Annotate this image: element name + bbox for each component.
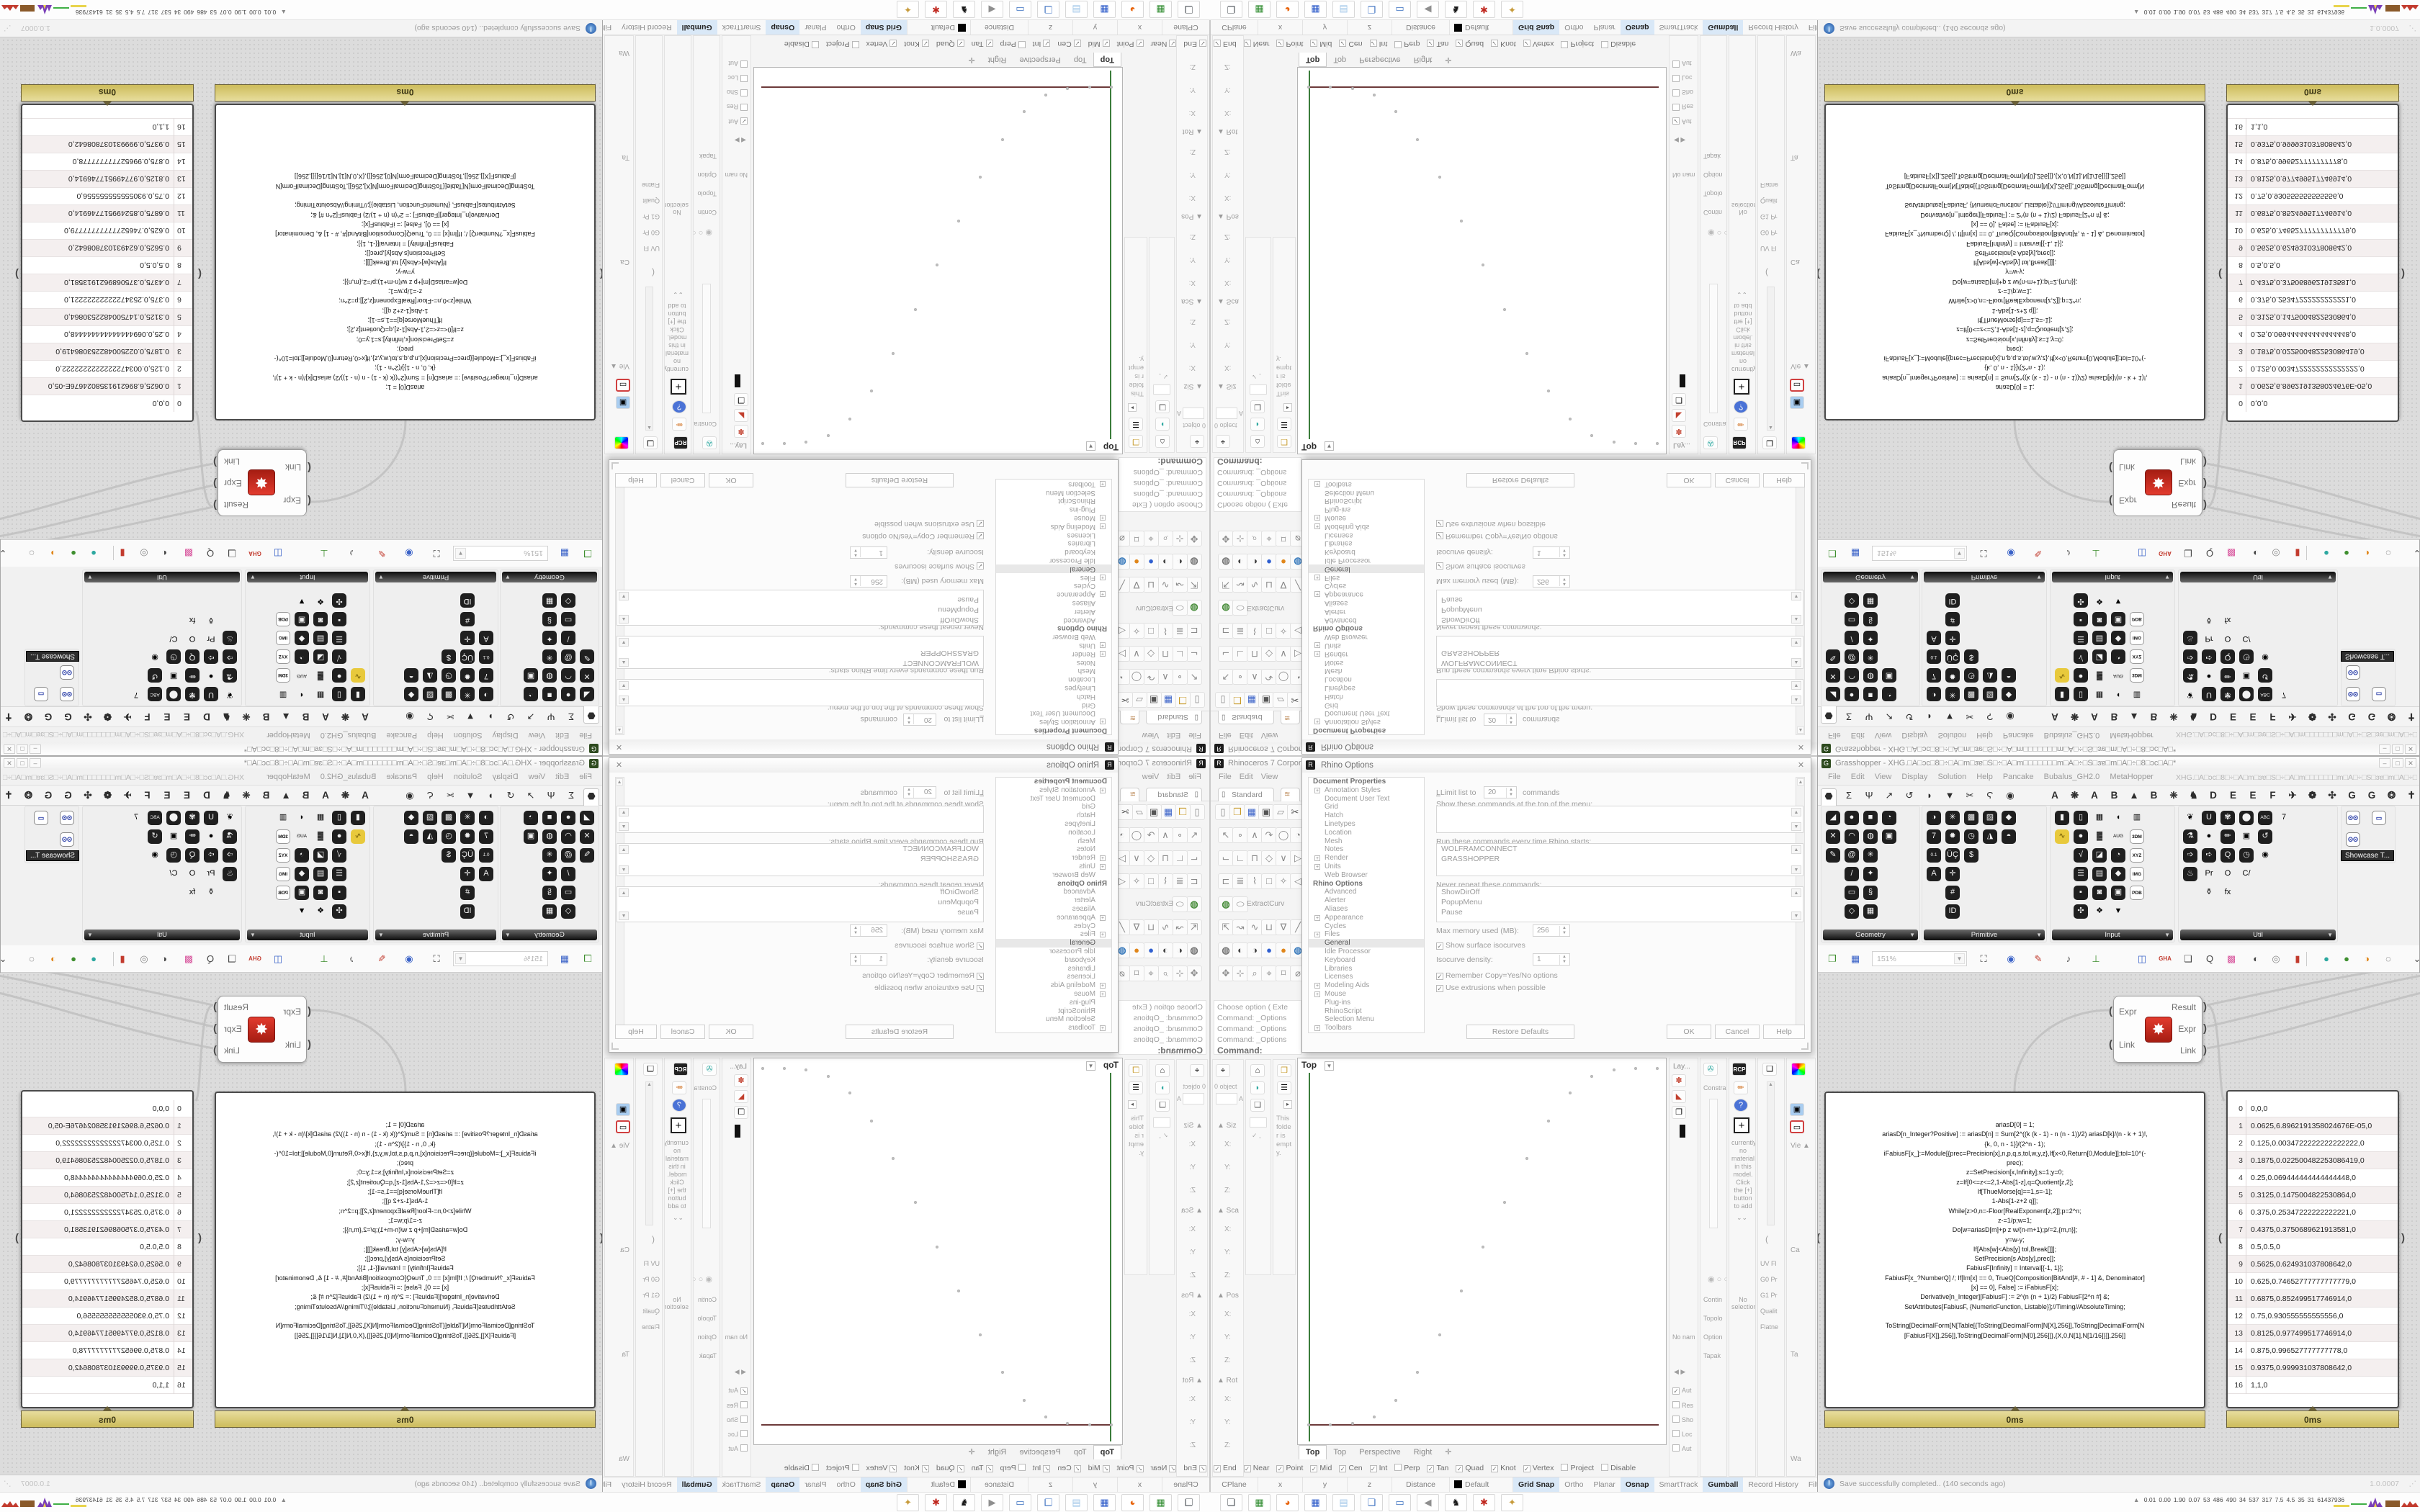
tree-item-keyboard[interactable]: Keyboard <box>1309 547 1424 556</box>
osnap-quad[interactable]: ✓Quad <box>1456 1461 1484 1475</box>
table-row[interactable]: 50.3125,0.1475004822530864,0 <box>22 308 192 325</box>
tree-item-selection-menu[interactable]: Selection Menu <box>1309 1015 1424 1024</box>
tree-item-idle-processor[interactable]: Idle Processor <box>996 556 1111 564</box>
toolbar-icon-3[interactable]: ▣ <box>1258 692 1274 708</box>
gh-toolbar-icon-10[interactable]: ❏ <box>223 950 241 968</box>
viewport-tab-perspective-2[interactable]: Perspective <box>1353 52 1407 66</box>
maximize-icon[interactable]: □ <box>17 744 28 754</box>
input-grip[interactable]: ( <box>308 1038 311 1050</box>
tree-item-alerter[interactable]: Alerter <box>1309 896 1424 905</box>
gh-toolbar-icon-8[interactable]: ◫ <box>269 950 287 968</box>
status-cell-distance[interactable]: Distance <box>970 1477 1028 1492</box>
gh-tab-❁[interactable]: ❁ <box>100 709 116 724</box>
tree-item-document-properties[interactable]: Document Properties <box>1309 778 1424 786</box>
component-icon[interactable]: ▥ <box>276 687 290 701</box>
tool-icon[interactable]: ↝ <box>1172 577 1188 593</box>
tree-item-plug-ins[interactable]: Plug-ins <box>996 505 1111 513</box>
component-icon[interactable]: ◠ <box>561 829 575 844</box>
component-icon[interactable]: ❖ <box>2092 593 2107 608</box>
component-icon[interactable]: ◓ <box>404 668 418 683</box>
scroll-down-icon[interactable]: ▼ <box>1791 681 1801 690</box>
close-icon[interactable]: ✕ <box>4 758 15 768</box>
component-icon[interactable]: ◆ <box>295 867 309 881</box>
component-icon[interactable]: ◇ <box>1845 593 1859 608</box>
showcase-icon[interactable]: ▭ <box>34 811 48 825</box>
osnap-quad[interactable]: ✓Quad <box>936 1461 964 1475</box>
constraints-row[interactable]: Option <box>1703 1333 1723 1341</box>
taskbar-icon-6[interactable]: ▭ <box>1389 1494 1411 1511</box>
tool-icon[interactable]: ⊹ <box>1232 531 1248 546</box>
small-field[interactable] <box>1153 384 1170 395</box>
gh-toolbar-icon-1[interactable]: ▦ <box>1847 544 1864 562</box>
component-icon[interactable]: ● <box>2202 668 2216 683</box>
section-rot[interactable]: ▲ Rot <box>1183 1377 1203 1385</box>
help-icon[interactable]: ? <box>672 1099 686 1112</box>
startup-commands-listbox[interactable]: ▲ ▼ WOLFRAMCONNECTGRASSHOPPER <box>1436 843 1803 876</box>
tree-item-web-browser[interactable]: Web Browser <box>1309 632 1424 641</box>
component-icon[interactable]: ◉ <box>2258 649 2272 664</box>
showcase-icon[interactable]: ▭ <box>2372 687 2386 701</box>
gh-menu-metahopper[interactable]: MetaHopper <box>266 728 310 742</box>
expander-icons[interactable]: ⌄⌄ <box>673 290 684 298</box>
component-icon[interactable]: AUG 20 <box>2111 829 2125 844</box>
constraints-tab[interactable]: Constra <box>694 420 717 428</box>
extrusions-checkbox[interactable]: ✓Use extrusions when possible <box>874 520 984 528</box>
table-row[interactable]: 10.0625,6.8962191358024676E-05,0 <box>22 377 192 395</box>
dialog-titlebar[interactable]: R Rhino Options ✕ <box>1302 739 1811 754</box>
brush-icon[interactable]: ✏ <box>1734 1081 1748 1094</box>
tool-icon[interactable]: ∧ <box>1157 827 1173 843</box>
gh-toolbar-icon-18[interactable]: ● <box>65 544 82 562</box>
scroll-down-icon[interactable]: ▼ <box>619 912 629 920</box>
component-icon[interactable]: ◠ <box>561 668 575 683</box>
table-row[interactable]: 140.875,0.996527777777778,0 <box>2228 1342 2398 1359</box>
section-sca[interactable]: ▲ Sca <box>1181 297 1203 305</box>
taskbar-icon-10[interactable]: ✦ <box>897 1 919 18</box>
screen-icon[interactable]: ▭ <box>1790 1120 1804 1133</box>
section-sca[interactable]: ▲ Sca <box>1181 1207 1203 1215</box>
screen-icon[interactable]: ▭ <box>616 379 630 392</box>
table-row[interactable]: 40.25,0.069444444444444448,0 <box>2228 325 2398 343</box>
toggle-osnap[interactable]: Osnap <box>766 1477 800 1492</box>
extrusions-checkbox[interactable]: ✓Use extrusions when possible <box>1436 520 1546 528</box>
table-row[interactable]: 130.8125,0.977499517746914,0 <box>22 1325 192 1342</box>
component-icon[interactable]: ▨ <box>423 811 437 825</box>
gh-tab-A[interactable]: A <box>318 709 333 724</box>
constraints-row[interactable]: Topolo <box>697 1315 717 1322</box>
table-row[interactable]: 50.3125,0.1475004822530864,0 <box>2228 1187 2398 1204</box>
osnap-knot[interactable]: ✓Knot <box>904 1461 929 1475</box>
component-icon[interactable]: ∿ <box>2055 668 2069 683</box>
gh-tab-F[interactable]: F <box>140 788 156 803</box>
constraints-row[interactable]: Contin <box>698 209 717 216</box>
gh-menu-file[interactable]: File <box>1828 728 1841 742</box>
component-icon[interactable]: fx <box>185 612 200 626</box>
panel-icon[interactable]: ⌂ <box>1155 1064 1170 1077</box>
table-row[interactable]: 40.25,0.069444444444444448,0 <box>2228 1169 2398 1187</box>
toggle-ortho[interactable]: Ortho <box>1559 1477 1588 1492</box>
gh-document-selector[interactable]: XHG.□A□ɔc□8□÷□A□m□ɜɐ□S□÷□A□m□□□□□□□m□A□÷… <box>2176 726 2417 742</box>
toolbar-icon-4[interactable]: ▱ <box>1131 804 1147 820</box>
component-icon[interactable]: ▼ <box>2111 593 2125 608</box>
gh-toolbar-icon-11[interactable]: Q <box>2201 544 2218 562</box>
tool-icon[interactable]: ● <box>1143 554 1159 570</box>
obj-icon[interactable]: ◣ <box>734 409 748 422</box>
component-icon[interactable]: ✦ <box>542 867 557 881</box>
osnap-cen[interactable]: ✓Cen <box>1339 37 1362 51</box>
component-icon[interactable]: ▪ <box>332 612 346 626</box>
table-row[interactable]: 140.875,0.996527777777778,0 <box>2228 153 2398 170</box>
table-row[interactable]: 110.6875,0.852499517746914,0 <box>2228 204 2398 222</box>
input-link[interactable]: Link <box>2119 462 2135 472</box>
expand-icon[interactable]: ▸ <box>1283 1100 1292 1109</box>
gh-tab-❋[interactable]: ❋ <box>2067 788 2083 803</box>
gh-menu-display[interactable]: Display <box>493 728 519 742</box>
input-grip[interactable]: ( <box>308 462 311 474</box>
component-icon[interactable]: ⬤ <box>166 687 181 701</box>
component-icon[interactable]: ◪ <box>313 649 328 664</box>
palette-label-primitive[interactable]: Primitive▼ <box>375 572 496 582</box>
component-icon[interactable]: ✣ <box>332 593 346 608</box>
component-icon[interactable]: ▪ <box>2074 612 2088 626</box>
panel-icon[interactable]: ◗ <box>1250 1081 1265 1094</box>
tool-icon[interactable]: ⊹ <box>1172 531 1188 546</box>
component-icon[interactable]: ID <box>460 904 475 919</box>
component-icon[interactable]: # <box>1945 612 1960 626</box>
help-button[interactable]: Help <box>1763 473 1805 487</box>
component-icon[interactable]: ✳ <box>1863 848 1878 863</box>
resize-grip[interactable] <box>1801 462 1809 469</box>
viewport-top[interactable]: Top ▼ <box>1297 67 1667 454</box>
tab-hatch[interactable]: ≋ <box>1281 788 1300 801</box>
showcase-icon[interactable]: ʘʘ <box>2346 665 2360 680</box>
gh-tab-D[interactable]: D <box>199 709 215 724</box>
status-cell-z[interactable]: z <box>1028 20 1072 35</box>
gh-tab-❁[interactable]: ❁ <box>2305 709 2321 724</box>
add-material-icon[interactable]: + <box>1734 379 1749 395</box>
tool-icon[interactable]: ≣ <box>1172 623 1188 639</box>
tool-icon[interactable]: ⌇ <box>1247 873 1263 889</box>
gh-tab-icon[interactable]: ↗ <box>1881 709 1897 724</box>
component-icon[interactable]: ▦ <box>313 811 328 825</box>
gh-tab-icon[interactable]: ▼ <box>462 709 478 724</box>
gh-menu-display[interactable]: Display <box>493 770 519 784</box>
osnap-cen[interactable]: ✓Cen <box>1057 1461 1080 1475</box>
gh-tab-❂[interactable]: ❂ <box>21 709 37 724</box>
tool-icon[interactable]: ↖ <box>1218 669 1234 685</box>
list-item[interactable]: ShowDirOff <box>617 887 983 897</box>
gh-tab-❋[interactable]: ❋ <box>338 709 354 724</box>
gh-menu-bubalus_gh2.0[interactable]: Bubalus_GH2.0 <box>321 770 377 784</box>
tab-standard[interactable]: ▯Standard <box>1218 711 1274 724</box>
component-icon[interactable]: ➩ <box>223 848 237 863</box>
component-icon[interactable]: ◓ <box>2002 829 2016 844</box>
panel-input-grip[interactable]: ( <box>198 1232 202 1244</box>
tree-item-hatch[interactable]: Hatch <box>1309 811 1424 820</box>
tool-icon[interactable]: ↖ <box>1218 827 1234 843</box>
component-icon[interactable]: ◔ <box>295 649 309 664</box>
tree-item-mesh[interactable]: Mesh <box>1309 667 1424 675</box>
radio-icons[interactable]: ◉ ○ ○ <box>1708 228 1727 238</box>
memory-spinner[interactable]: 256▲▼ <box>1533 924 1570 937</box>
component-icon[interactable]: ÜÇ <box>460 848 475 863</box>
toolbar-icon-1[interactable]: ❒ <box>1229 692 1245 708</box>
gh-tab-G[interactable]: G <box>60 788 76 803</box>
tool-icon[interactable]: ⌖ <box>1143 531 1159 546</box>
component-icon[interactable]: ▥ <box>2130 687 2144 701</box>
gh-tab-A[interactable]: A <box>2047 788 2063 803</box>
help-button[interactable]: Help <box>1763 1025 1805 1039</box>
component-icon[interactable]: ◪ <box>2092 649 2107 664</box>
osnap-vertex[interactable]: ✓Vertex <box>866 37 897 51</box>
menu-edit[interactable]: Edit <box>1240 728 1253 742</box>
tool-icon[interactable]: ⌑ <box>1129 966 1144 981</box>
tool-icon[interactable]: ◯ <box>1276 669 1291 685</box>
gh-tab-F[interactable]: F <box>2265 709 2281 724</box>
scrollbar[interactable]: ▲ <box>1767 287 1775 431</box>
table-row[interactable]: 10.0625,6.8962191358024676E-05,0 <box>2228 377 2398 395</box>
info-icon[interactable]: ! <box>1824 23 1834 34</box>
output-grip[interactable]: ) <box>213 1022 217 1035</box>
resize-grip[interactable] <box>611 462 619 469</box>
osnap-perp[interactable]: Perp <box>1394 37 1420 51</box>
dock-check[interactable]: Aut <box>728 60 748 68</box>
tree-item-rhinoscript[interactable]: RhinoScript <box>996 1007 1111 1016</box>
minimize-icon[interactable]: – <box>2379 744 2390 754</box>
toolbar-icon-0[interactable]: ▯ <box>1189 692 1205 708</box>
component-icon[interactable]: √ <box>2074 848 2088 863</box>
tool-icon[interactable]: ⊓ <box>1157 646 1173 662</box>
tool-icon[interactable]: ∟ <box>1172 646 1188 662</box>
panel-input-grip[interactable]: ( <box>2218 1232 2222 1244</box>
tree-item-plug-ins[interactable]: Plug-ins <box>1309 505 1424 513</box>
tree-item-appearance[interactable]: +Appearance <box>1309 914 1424 922</box>
limit-spinner[interactable]: 20▲▼ <box>1484 786 1517 798</box>
gh-tab-❋[interactable]: ❋ <box>2067 709 2083 724</box>
tool-icon[interactable]: ∘ <box>1172 827 1188 843</box>
tool-icon[interactable]: ◇ <box>1143 646 1159 662</box>
table-row[interactable]: 80.5,0.5,0 <box>22 256 192 274</box>
tool-icon[interactable]: ◍ <box>1218 896 1234 912</box>
gh-toolbar-icon-10[interactable]: ❏ <box>223 544 241 562</box>
osnap-near[interactable]: ✓Near <box>1151 1461 1177 1475</box>
gh-menu-solution[interactable]: Solution <box>454 770 483 784</box>
gh-tab-E[interactable]: E <box>2226 788 2241 803</box>
component-icon[interactable]: ☰ <box>2074 631 2088 645</box>
toggle-gumball[interactable]: Gumball <box>677 1477 717 1492</box>
tab-hatch[interactable]: ≋ <box>1120 788 1139 801</box>
density-spinner[interactable]: 1▲▼ <box>850 546 887 559</box>
tree-item-keyboard[interactable]: Keyboard <box>996 956 1111 965</box>
scroll-down-icon[interactable]: ▼ <box>619 865 629 874</box>
camera-axes-icon[interactable]: ✇ <box>1703 1063 1718 1076</box>
name-field[interactable] <box>1183 408 1204 419</box>
tool-icon[interactable]: ◍ <box>1218 942 1234 958</box>
tool-icon[interactable]: ✥ <box>1218 531 1234 546</box>
output-grip[interactable]: ) <box>213 1044 217 1056</box>
component-icon[interactable]: Q <box>185 848 200 863</box>
osnap-tan[interactable]: ✓Tan <box>1427 1461 1448 1475</box>
constraints-row[interactable]: Tapak <box>699 1352 717 1359</box>
component-icon[interactable]: ♨ <box>223 631 237 645</box>
gh-toolbar-icon-13[interactable]: ◐ <box>156 544 173 562</box>
component-icon[interactable]: ◆ <box>404 811 418 825</box>
component-icon[interactable]: A <box>479 867 493 881</box>
tree-item-mouse[interactable]: +Mouse <box>996 990 1111 999</box>
palette-label-input[interactable]: Input▼ <box>247 930 368 940</box>
tool-icon[interactable]: ⬭ <box>1172 896 1188 912</box>
tool-icon[interactable]: ◍ <box>1186 942 1202 958</box>
list-item[interactable]: WOLFRAMCONNECT <box>1437 658 1803 668</box>
folder-icon[interactable]: ❒ <box>1277 435 1291 448</box>
gh-toolbar-icon-19[interactable]: ◑ <box>45 950 62 968</box>
taskbar-icon-2[interactable]: ◕ <box>1276 1 1299 18</box>
component-icon[interactable]: 3DM <box>2130 829 2144 844</box>
panel-icon[interactable]: ◗ <box>1155 418 1170 431</box>
osnap-disable[interactable]: Disable <box>784 37 819 51</box>
close-icon[interactable]: ✕ <box>2405 744 2416 754</box>
list-item[interactable]: GRASSHOPPER <box>617 854 983 864</box>
tree-item-idle-processor[interactable]: Idle Processor <box>1309 556 1424 564</box>
tool-icon[interactable]: ◇ <box>1261 646 1277 662</box>
component-icon[interactable]: ⚱ <box>204 886 218 900</box>
component-icon[interactable]: $ <box>1964 848 1978 863</box>
table-row[interactable]: 50.3125,0.1475004822530864,0 <box>2228 308 2398 325</box>
tree-item-mouse[interactable]: +Mouse <box>1309 513 1424 522</box>
panel-output-grip[interactable]: ) <box>2401 268 2405 280</box>
list-item[interactable]: Pause <box>617 907 983 917</box>
tree-item-appearance[interactable]: +Appearance <box>996 914 1111 922</box>
layer-cell[interactable]: Default <box>907 1477 970 1492</box>
list-item[interactable]: GRASSHOPPER <box>617 648 983 658</box>
component-icon[interactable]: ▣ <box>295 886 309 900</box>
gh-menu-help[interactable]: Help <box>427 770 444 784</box>
component-icon[interactable]: 7 <box>2277 687 2291 701</box>
screen-icon[interactable]: ▭ <box>616 1120 630 1133</box>
component-icon[interactable]: ▣ <box>524 668 538 683</box>
gh-toolbar-icon-12[interactable]: ▩ <box>180 544 197 562</box>
osnap-point[interactable]: ✓Point <box>1117 37 1144 51</box>
gh-tab-icon[interactable]: ◉ <box>2002 709 2018 724</box>
expander-icons[interactable]: ⌄⌄ <box>1736 290 1747 298</box>
table-row[interactable]: 70.4375,0.3750689621913581,0 <box>22 274 192 291</box>
gh-toolbar-icon-0[interactable]: ❐ <box>579 544 596 562</box>
table-row[interactable]: 30.1875,0.022500482253086419,0 <box>22 1152 192 1169</box>
toolbar-icon-4[interactable]: ▱ <box>1273 804 1289 820</box>
tool-icon[interactable]: ⊏ <box>1186 873 1202 889</box>
gh-tab-icon[interactable]: ◗ <box>483 788 498 803</box>
small-field[interactable] <box>1250 384 1267 395</box>
pager-icons[interactable]: ◀ ▶ <box>1674 1368 1685 1376</box>
scroll-up-icon[interactable]: ▲ <box>619 845 629 854</box>
gh-toolbar-icon-0[interactable]: ❐ <box>1824 544 1841 562</box>
component-icon[interactable]: O <box>185 631 200 645</box>
component-icon[interactable]: ◠ <box>1845 668 1859 683</box>
component-icon[interactable]: ▦ <box>2092 811 2107 825</box>
tool-icon[interactable]: □ <box>1261 623 1277 639</box>
component-icon[interactable]: 7 <box>479 829 493 844</box>
gh-toolbar-icon-4[interactable]: ◉ <box>400 950 418 968</box>
component-icon[interactable]: ☰ <box>332 631 346 645</box>
startup-commands-listbox[interactable]: ▲ ▼ WOLFRAMCONNECTGRASSHOPPER <box>617 636 984 669</box>
list-item[interactable]: ShowDirOff <box>1437 887 1803 897</box>
tool-icon[interactable]: ⊔ <box>1261 919 1277 935</box>
component-icon[interactable]: ✣ <box>332 904 346 919</box>
gh-toolbar-icon-5[interactable]: ✎ <box>2030 950 2047 968</box>
viewport-prop-ca[interactable]: Ca <box>620 258 629 266</box>
section-siz[interactable]: ▲ Siz <box>1217 1122 1237 1130</box>
table-row[interactable]: 40.25,0.069444444444444448,0 <box>22 1169 192 1187</box>
component-icon[interactable]: ❦ <box>2183 811 2197 825</box>
tree-item-location[interactable]: Location <box>996 829 1111 837</box>
toggle-grid-snap[interactable]: Grid Snap <box>861 20 907 35</box>
component-icon[interactable]: ⬤ <box>166 811 181 825</box>
table-row[interactable]: 90.5625,0.624931037808642,0 <box>22 1256 192 1273</box>
component-icon[interactable]: ● <box>332 668 346 683</box>
component-icon[interactable]: ➪ <box>2202 649 2216 664</box>
gh-tab-icon[interactable]: ↺ <box>1901 788 1917 803</box>
gh-toolbar-icon-21[interactable]: ⌄ <box>0 544 12 562</box>
gh-tab-♞[interactable]: ♞ <box>219 788 235 803</box>
tree-item-render[interactable]: +Render <box>996 649 1111 658</box>
component-icon[interactable]: ↺ <box>2258 829 2272 844</box>
gh-tab-D[interactable]: D <box>199 788 215 803</box>
gh-toolbar-icon-17[interactable]: ● <box>2318 544 2335 562</box>
status-cell-cplane[interactable]: CPlane <box>1211 20 1258 35</box>
taskbar-icon-0[interactable]: ❏ <box>1220 1494 1242 1511</box>
tree-item-hatch[interactable]: Hatch <box>1309 692 1424 701</box>
monitor-icon[interactable]: ❏ <box>643 436 658 449</box>
osnap-point[interactable]: ✓Point <box>1276 37 1303 51</box>
density-spinner[interactable]: 1▲▼ <box>1533 953 1570 966</box>
tool-icon[interactable]: ⌖ <box>1261 966 1277 981</box>
toolbar-icon-2[interactable]: ▦ <box>1244 804 1260 820</box>
gh-menu-metahopper[interactable]: MetaHopper <box>2110 770 2154 784</box>
palette-label-geometry[interactable]: Geometry▼ <box>1823 572 1918 582</box>
density-spinner[interactable]: 1▲▼ <box>850 953 887 966</box>
gh-menu-display[interactable]: Display <box>1901 770 1927 784</box>
osnap-cen[interactable]: ✓Cen <box>1057 37 1080 51</box>
gh-tab-✝[interactable]: ✝ <box>2403 788 2419 803</box>
gh-tab-E[interactable]: E <box>159 788 175 803</box>
component-icon[interactable]: ◷ <box>166 649 181 664</box>
component-icon[interactable]: ✳ <box>460 687 475 701</box>
tree-item-notes[interactable]: Notes <box>996 658 1111 667</box>
section-rot[interactable]: ▲ Rot <box>1217 127 1237 135</box>
status-cell-z[interactable]: z <box>1028 1477 1072 1492</box>
component-icon[interactable]: ÜÇ <box>1945 848 1960 863</box>
component-icon[interactable]: ▣ <box>295 612 309 626</box>
resize-grip[interactable]: ⋰ <box>2409 19 2417 37</box>
component-icon[interactable]: ➪ <box>2202 848 2216 863</box>
tool-icon[interactable]: ✥ <box>1218 966 1234 981</box>
gh-toolbar-icon-15[interactable]: ▮ <box>2289 544 2306 562</box>
tree-item-licenses[interactable]: Licenses <box>996 973 1111 981</box>
layer-cell[interactable]: Default <box>907 20 970 35</box>
component-icon[interactable]: ID <box>1945 904 1960 919</box>
component-icon[interactable]: ◢ <box>1826 687 1840 701</box>
gh-toolbar-icon-12[interactable]: ▩ <box>180 950 197 968</box>
gh-toolbar-icon-4[interactable]: ◉ <box>2002 544 2020 562</box>
gh-tab-icon[interactable]: ◗ <box>1922 709 1937 724</box>
taskbar-icon-4[interactable]: ▤ <box>1332 1 1355 18</box>
viewport-prop-ta[interactable]: Ta <box>1791 1351 1798 1359</box>
gh-tab-icon[interactable]: ◉ <box>402 788 418 803</box>
output-grip[interactable]: ) <box>2203 477 2207 490</box>
tree-item-cycles[interactable]: Cycles <box>1309 922 1424 931</box>
scrollbar[interactable]: ▲ <box>645 287 653 431</box>
component-icon[interactable]: ◆ <box>2002 687 2016 701</box>
